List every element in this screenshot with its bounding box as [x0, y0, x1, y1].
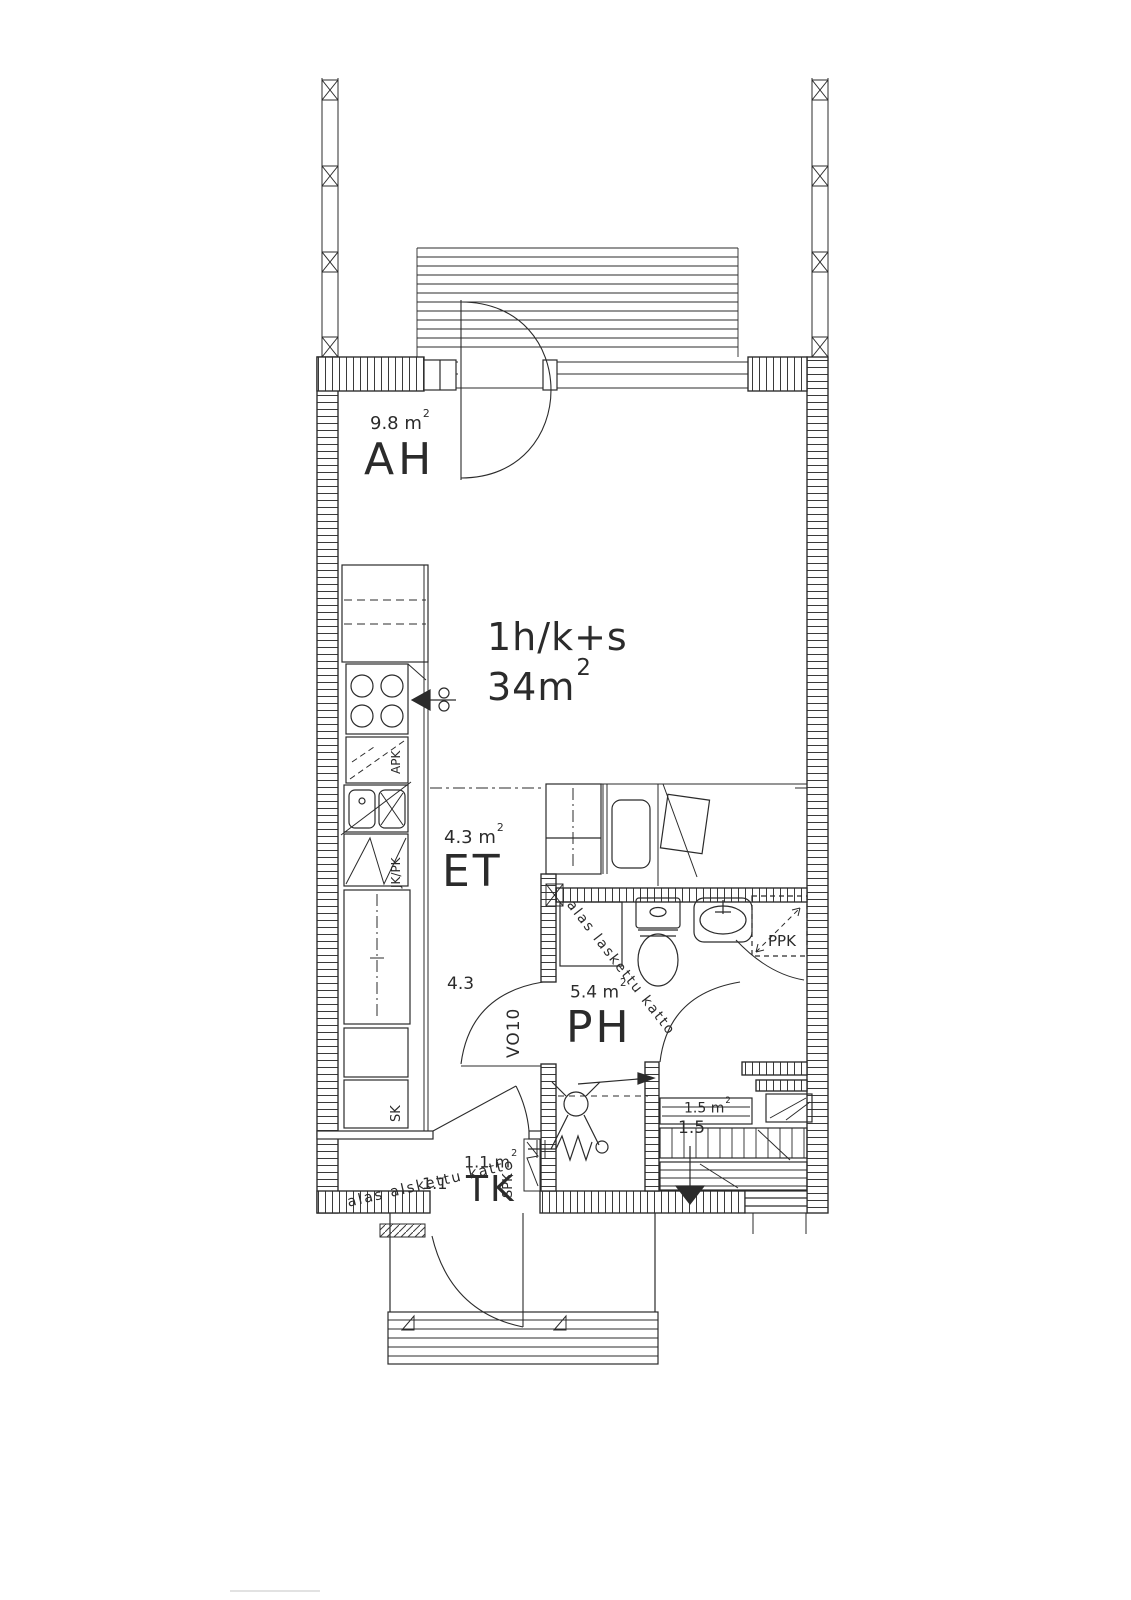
electrical-panel: [524, 1139, 540, 1191]
ah-room-label: AH: [364, 438, 435, 482]
sink: [341, 782, 411, 835]
sauna-area-label: 1.5 m2: [684, 1100, 730, 1116]
door-code-vo10-label: VO10: [506, 1008, 523, 1058]
sauna-benches: [660, 1098, 807, 1190]
slope-arrow-icon: [578, 1073, 654, 1084]
scan-artifact: [230, 1590, 320, 1592]
furniture-table: [612, 800, 650, 868]
et-area-label: 4.3 m2: [444, 828, 503, 847]
spk-label: SPK: [502, 1173, 515, 1198]
sauna-heater: [766, 1094, 812, 1122]
toilet: [636, 898, 680, 986]
apartment-area-label: 34m2: [487, 668, 591, 706]
jkpk-label: JK/PK: [390, 857, 402, 888]
cooker-hood-arrow-icon: [412, 688, 456, 711]
floorplan-page: 9.8 m2 AH 1h/k+s 34m2 4.3 m2 ET 4.3 VO10…: [0, 0, 1131, 1600]
balcony-railing: [322, 78, 828, 357]
ah-area-label: 9.8 m2: [370, 414, 429, 433]
ph-room-label: PH: [566, 1006, 632, 1050]
et-room-label: ET: [442, 850, 503, 894]
sauna-dimension-label: 1.5: [678, 1120, 705, 1137]
interior-walls: [317, 784, 807, 1191]
sauna: [660, 1094, 812, 1204]
apartment-type-label: 1h/k+s: [487, 618, 628, 656]
floorplan-drawing: [0, 0, 1131, 1600]
tk-area-label: 1.1 m2: [464, 1154, 516, 1170]
et-dimension-label: 4.3: [447, 976, 474, 993]
entrance-door: [432, 1213, 523, 1327]
sk-label: SK: [390, 1105, 403, 1122]
balcony-door: [461, 300, 551, 480]
ph-door-vo10: [461, 982, 543, 1066]
entrance-steps: [388, 1312, 658, 1364]
entrance-porch: [380, 1213, 658, 1364]
tk-dimension-label: 1.1: [422, 1176, 447, 1192]
apk-label: APK: [390, 751, 402, 774]
ppk-label: PPK: [768, 934, 796, 949]
tk-inner-door: [433, 1086, 529, 1131]
ph-area-label: 5.4 m2: [570, 984, 625, 1002]
